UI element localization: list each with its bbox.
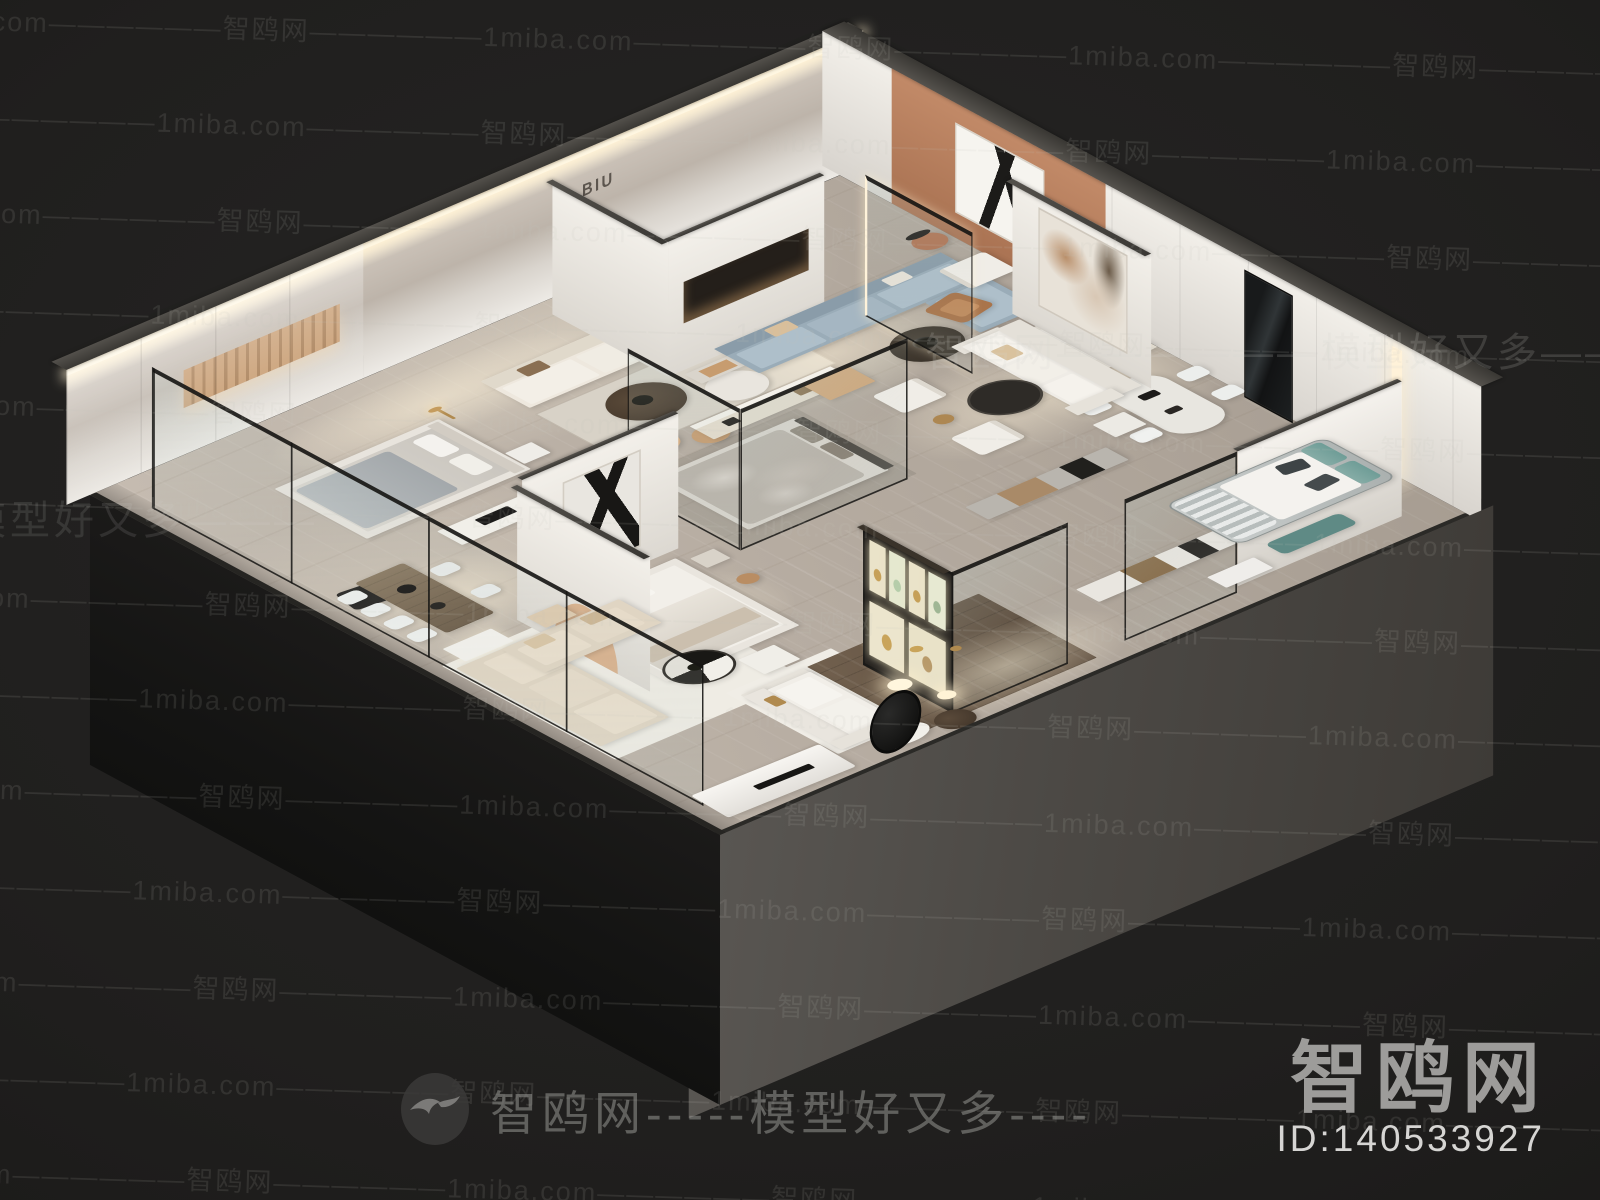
lit-cell (869, 540, 885, 599)
table-decor (1163, 405, 1184, 415)
desk-slot (753, 764, 816, 790)
lit-cell (909, 561, 925, 620)
table-decor (1137, 389, 1162, 401)
lit-cell (928, 571, 945, 631)
lit-cell (869, 601, 904, 674)
lit-cell (909, 622, 946, 696)
black-segment (1059, 457, 1106, 479)
screenshot-canvas: BIU (0, 0, 1600, 1200)
model-id-text: ID:140533927 (1277, 1118, 1545, 1160)
nightstand (690, 549, 731, 568)
watermark-footer-text: 智鸥网-----模型好又多---- (490, 1075, 1092, 1144)
bird-logo-icon (398, 1072, 472, 1146)
showroom-floor: BIU (90, 175, 1470, 835)
tray-black (474, 506, 517, 526)
site-logo-text: 智鸥网 (1290, 1016, 1548, 1128)
mirror-panel (1244, 269, 1293, 423)
lit-cell (889, 550, 905, 609)
